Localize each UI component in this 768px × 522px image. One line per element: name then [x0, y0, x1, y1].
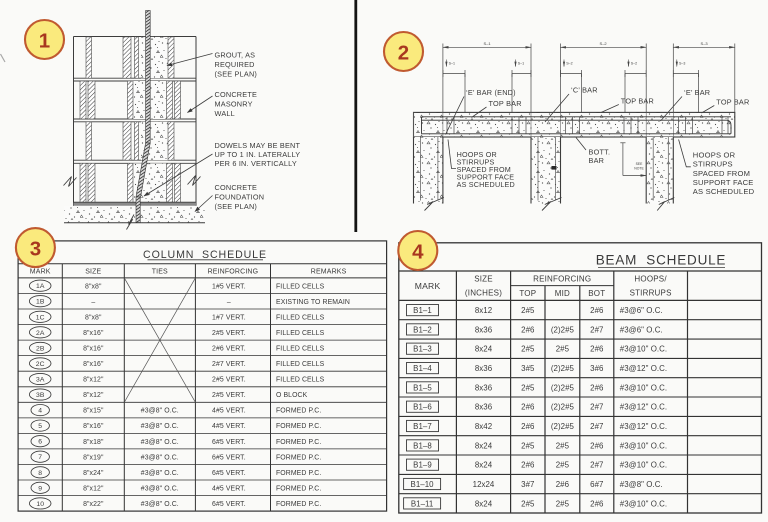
svg-text:4: 4	[38, 408, 42, 415]
svg-text:CONCRETEMASONRYWALL: CONCRETEMASONRYWALL	[215, 90, 258, 118]
svg-text:–: –	[227, 299, 231, 306]
svg-text:8"x18": 8"x18"	[83, 439, 104, 446]
svg-text:2#5: 2#5	[556, 345, 570, 354]
svg-text:S–2: S–2	[566, 62, 572, 66]
svg-text:SEE: SEE	[636, 162, 644, 166]
svg-text:2#6: 2#6	[521, 422, 535, 431]
svg-text:#3@8" O.C.: #3@8" O.C.	[620, 480, 663, 489]
svg-text:2#7: 2#7	[590, 461, 603, 470]
svg-text:1#7 VERT.: 1#7 VERT.	[212, 314, 246, 321]
svg-text:(2)2#5: (2)2#5	[551, 364, 575, 373]
svg-text:TOP BAR: TOP BAR	[489, 99, 522, 108]
svg-text:2: 2	[398, 42, 409, 65]
svg-text:1C: 1C	[36, 314, 45, 321]
svg-text:6#5 VERT.: 6#5 VERT.	[212, 470, 246, 477]
svg-text:REINFORCING: REINFORCING	[533, 275, 591, 284]
svg-text:BOTT.BAR: BOTT.BAR	[589, 147, 611, 165]
svg-text:NOTE: NOTE	[634, 167, 644, 171]
svg-text:2#5: 2#5	[556, 499, 570, 508]
svg-text:#3@8" O.C.: #3@8" O.C.	[141, 454, 179, 461]
svg-text:2C: 2C	[36, 361, 45, 368]
svg-text:(2)2#5: (2)2#5	[551, 325, 575, 334]
svg-text:1: 1	[39, 30, 50, 53]
svg-text:2A: 2A	[36, 330, 45, 337]
svg-text:HOOPS ORSTIRRUPSSPACED FROMSUP: HOOPS ORSTIRRUPSSPACED FROMSUPPORT FACEA…	[457, 150, 515, 189]
svg-text:(2)2#5: (2)2#5	[551, 383, 575, 392]
svg-text:S–3: S–3	[679, 62, 685, 66]
svg-text:8: 8	[38, 470, 42, 477]
svg-text:‘E’ BAR (END): ‘E’ BAR (END)	[466, 88, 516, 97]
svg-text:8"x8": 8"x8"	[85, 314, 102, 321]
svg-text:8x36: 8x36	[475, 383, 493, 392]
svg-text:DOWELS MAY BE BENTUP TO 1 IN.: DOWELS MAY BE BENTUP TO 1 IN. LATERALLYP…	[215, 141, 301, 168]
svg-text:2#7: 2#7	[590, 403, 603, 412]
svg-text:TOP BAR: TOP BAR	[716, 98, 749, 107]
svg-text:8x24: 8x24	[475, 461, 493, 470]
svg-text:8"x19": 8"x19"	[83, 454, 104, 461]
svg-text:#3@10" O.C.: #3@10" O.C.	[620, 383, 667, 392]
svg-text:2#5: 2#5	[521, 306, 535, 315]
svg-text:2#5 VERT.: 2#5 VERT.	[212, 377, 246, 384]
svg-text:SIZE: SIZE	[474, 275, 493, 284]
svg-text:BEAM SCHEDULE: BEAM SCHEDULE	[596, 252, 726, 267]
svg-text:8"x15": 8"x15"	[83, 408, 104, 415]
svg-text:8x36: 8x36	[475, 364, 493, 373]
svg-text:6#5 VERT.: 6#5 VERT.	[212, 439, 246, 446]
svg-text:10: 10	[36, 501, 44, 508]
svg-text:(2)2#5: (2)2#5	[551, 403, 575, 412]
svg-text:2#6: 2#6	[521, 461, 535, 470]
svg-text:#3@8" O.C.: #3@8" O.C.	[141, 408, 179, 415]
svg-text:8"x24": 8"x24"	[83, 470, 104, 477]
svg-text:2#7: 2#7	[590, 422, 603, 431]
svg-text:2#6: 2#6	[590, 441, 604, 450]
svg-text:8"x16": 8"x16"	[83, 330, 104, 337]
svg-text:FILLED CELLS: FILLED CELLS	[276, 346, 325, 353]
svg-text:TOP: TOP	[519, 289, 536, 298]
svg-text:2#5 VERT.: 2#5 VERT.	[212, 392, 246, 399]
svg-text:FILLED CELLS: FILLED CELLS	[276, 283, 325, 290]
svg-text:1A: 1A	[36, 283, 45, 290]
svg-text:6#5 VERT.: 6#5 VERT.	[212, 454, 246, 461]
svg-text:S–1: S–1	[483, 41, 491, 46]
svg-text:FORMED P.C.: FORMED P.C.	[276, 439, 321, 446]
svg-text:6#7: 6#7	[590, 480, 603, 489]
svg-text:MARK: MARK	[415, 281, 441, 291]
svg-text:1#5 VERT.: 1#5 VERT.	[212, 283, 246, 290]
svg-text:#3@12" O.C.: #3@12" O.C.	[620, 422, 667, 431]
svg-text:STIRRUPS: STIRRUPS	[630, 289, 672, 298]
svg-text:8"x12": 8"x12"	[83, 485, 104, 492]
svg-text:–: –	[91, 299, 95, 306]
svg-text:EXISTING TO REMAIN: EXISTING TO REMAIN	[276, 299, 350, 306]
svg-text:6#5 VERT.: 6#5 VERT.	[212, 501, 246, 508]
svg-text:B1–4: B1–4	[413, 364, 432, 373]
svg-text:7: 7	[38, 454, 42, 461]
svg-text:3B: 3B	[36, 392, 45, 399]
svg-text:2#5: 2#5	[521, 499, 535, 508]
svg-text:4#5 VERT.: 4#5 VERT.	[212, 408, 246, 415]
svg-text:2#6: 2#6	[590, 499, 604, 508]
svg-text:1B: 1B	[36, 299, 45, 306]
svg-text:2#6: 2#6	[590, 383, 604, 392]
svg-text:#3@10" O.C.: #3@10" O.C.	[620, 461, 667, 470]
svg-text:HOOPS ORSTIRRUPSSPACED FROMSUP: HOOPS ORSTIRRUPSSPACED FROMSUPPORT FACEA…	[693, 151, 755, 196]
svg-text:B1–5: B1–5	[413, 383, 432, 392]
svg-text:9: 9	[38, 485, 42, 492]
svg-text:#3@10" O.C.: #3@10" O.C.	[620, 345, 667, 354]
svg-text:B1–3: B1–3	[413, 345, 432, 354]
svg-text:2#5: 2#5	[556, 461, 570, 470]
svg-text:TIES: TIES	[152, 269, 168, 276]
svg-text:REINFORCING: REINFORCING	[208, 269, 259, 276]
svg-text:HOOPS/: HOOPS/	[634, 275, 667, 284]
svg-text:B1–1: B1–1	[413, 306, 432, 315]
svg-text:8x36: 8x36	[475, 325, 493, 334]
svg-text:#3@8" O.C.: #3@8" O.C.	[141, 439, 179, 446]
svg-text:3#6: 3#6	[590, 364, 604, 373]
svg-text:REMARKS: REMARKS	[311, 269, 347, 276]
svg-text:B1–7: B1–7	[413, 422, 432, 431]
svg-text:4#5 VERT.: 4#5 VERT.	[212, 423, 246, 430]
svg-text:(2)2#5: (2)2#5	[551, 422, 575, 431]
svg-text:2#7 VERT.: 2#7 VERT.	[212, 361, 246, 368]
svg-text:(INCHES): (INCHES)	[465, 289, 502, 298]
svg-text:S–1: S–1	[518, 62, 524, 66]
svg-text:2#6: 2#6	[521, 325, 535, 334]
svg-text:2#5: 2#5	[521, 383, 535, 392]
svg-text:2#7: 2#7	[590, 325, 603, 334]
svg-text:8"x22": 8"x22"	[83, 501, 104, 508]
svg-text:S–1: S–1	[449, 62, 455, 66]
svg-text:3: 3	[30, 238, 41, 261]
svg-text:FILLED CELLS: FILLED CELLS	[276, 330, 325, 337]
svg-text:4#5 VERT.: 4#5 VERT.	[212, 485, 246, 492]
svg-text:8"x8": 8"x8"	[85, 283, 102, 290]
svg-text:#3@6" O.C.: #3@6" O.C.	[620, 306, 663, 315]
svg-text:8x12: 8x12	[475, 306, 492, 315]
svg-text:3#7: 3#7	[521, 480, 534, 489]
svg-text:B1–10: B1–10	[411, 480, 435, 489]
svg-text:‘E’ BAR: ‘E’ BAR	[684, 88, 710, 97]
svg-text:MARK: MARK	[30, 269, 51, 276]
svg-text:8"x16": 8"x16"	[83, 423, 104, 430]
svg-text:8"x12": 8"x12"	[83, 377, 104, 384]
svg-text:S–2: S–2	[599, 41, 607, 46]
svg-text:#3@10" O.C.: #3@10" O.C.	[620, 441, 667, 450]
svg-text:8x24: 8x24	[475, 345, 493, 354]
svg-text:FILLED CELLS: FILLED CELLS	[276, 377, 325, 384]
svg-text:8x36: 8x36	[475, 403, 493, 412]
svg-text:MID: MID	[555, 289, 570, 298]
svg-text:2#6: 2#6	[590, 345, 604, 354]
svg-text:8"x12": 8"x12"	[83, 392, 104, 399]
svg-text:FILLED CELLS: FILLED CELLS	[276, 361, 325, 368]
svg-text:#3@12" O.C.: #3@12" O.C.	[620, 364, 667, 373]
svg-text:#3@10" O.C.: #3@10" O.C.	[620, 499, 667, 508]
svg-text:B1–11: B1–11	[411, 499, 433, 508]
svg-text:FORMED P.C.: FORMED P.C.	[276, 454, 321, 461]
svg-text:FORMED P.C.: FORMED P.C.	[276, 408, 321, 415]
svg-text:12x24: 12x24	[473, 480, 495, 489]
svg-text:2#5: 2#5	[521, 345, 535, 354]
svg-text:FORMED P.C.: FORMED P.C.	[276, 501, 321, 508]
svg-text:#3@8" O.C.: #3@8" O.C.	[141, 485, 179, 492]
svg-text:O BLOCK: O BLOCK	[276, 392, 308, 399]
svg-text:5: 5	[38, 423, 42, 430]
svg-text:GROUT, ASREQUIRED(SEE PLAN): GROUT, ASREQUIRED(SEE PLAN)	[215, 51, 258, 79]
svg-text:CONCRETEFOUNDATION(SEE PLAN): CONCRETEFOUNDATION(SEE PLAN)	[215, 183, 265, 211]
svg-text:BOT: BOT	[588, 289, 605, 298]
svg-text:B1–6: B1–6	[413, 403, 432, 412]
svg-text:B1–8: B1–8	[413, 441, 432, 450]
svg-text:2B: 2B	[36, 345, 45, 352]
svg-text:#3@8" O.C.: #3@8" O.C.	[141, 501, 179, 508]
svg-text:S–2: S–2	[631, 62, 637, 66]
svg-text:4: 4	[412, 241, 424, 264]
svg-text:#3@6" O.C.: #3@6" O.C.	[620, 325, 663, 334]
svg-text:2#5: 2#5	[556, 441, 570, 450]
svg-text:TOP BAR: TOP BAR	[621, 97, 654, 106]
svg-text:2#6: 2#6	[590, 306, 604, 315]
svg-text:FORMED P.C.: FORMED P.C.	[276, 485, 321, 492]
svg-text:FORMED P.C.: FORMED P.C.	[276, 423, 321, 430]
svg-text:8x42: 8x42	[475, 422, 492, 431]
svg-text:B1–2: B1–2	[413, 325, 432, 334]
svg-text:S–3: S–3	[700, 41, 708, 46]
svg-text:2#5 VERT.: 2#5 VERT.	[212, 330, 246, 337]
svg-text:2#6 VERT.: 2#6 VERT.	[212, 346, 246, 353]
svg-text:‘C’ BAR: ‘C’ BAR	[571, 86, 598, 95]
svg-text:6: 6	[38, 439, 42, 446]
svg-text:8x24: 8x24	[475, 441, 493, 450]
svg-text:#3@8" O.C.: #3@8" O.C.	[141, 423, 179, 430]
svg-text:FORMED P.C.: FORMED P.C.	[276, 470, 321, 477]
svg-text:#3@8" O.C.: #3@8" O.C.	[141, 470, 179, 477]
svg-text:2#6: 2#6	[521, 403, 535, 412]
svg-text:COLUMN SCHEDULE: COLUMN SCHEDULE	[143, 249, 267, 261]
svg-text:3#5: 3#5	[521, 364, 535, 373]
svg-text:2#6: 2#6	[556, 480, 570, 489]
svg-text:SIZE: SIZE	[85, 269, 101, 276]
svg-text:8x24: 8x24	[475, 499, 493, 508]
svg-text:2#5: 2#5	[521, 441, 535, 450]
svg-text:FILLED CELLS: FILLED CELLS	[276, 314, 325, 321]
svg-text:#3@12" O.C.: #3@12" O.C.	[620, 403, 667, 412]
svg-text:8"x16": 8"x16"	[83, 346, 104, 353]
svg-text:3A: 3A	[36, 377, 45, 384]
svg-text:8"x16": 8"x16"	[83, 361, 104, 368]
svg-text:B1–9: B1–9	[413, 461, 432, 470]
